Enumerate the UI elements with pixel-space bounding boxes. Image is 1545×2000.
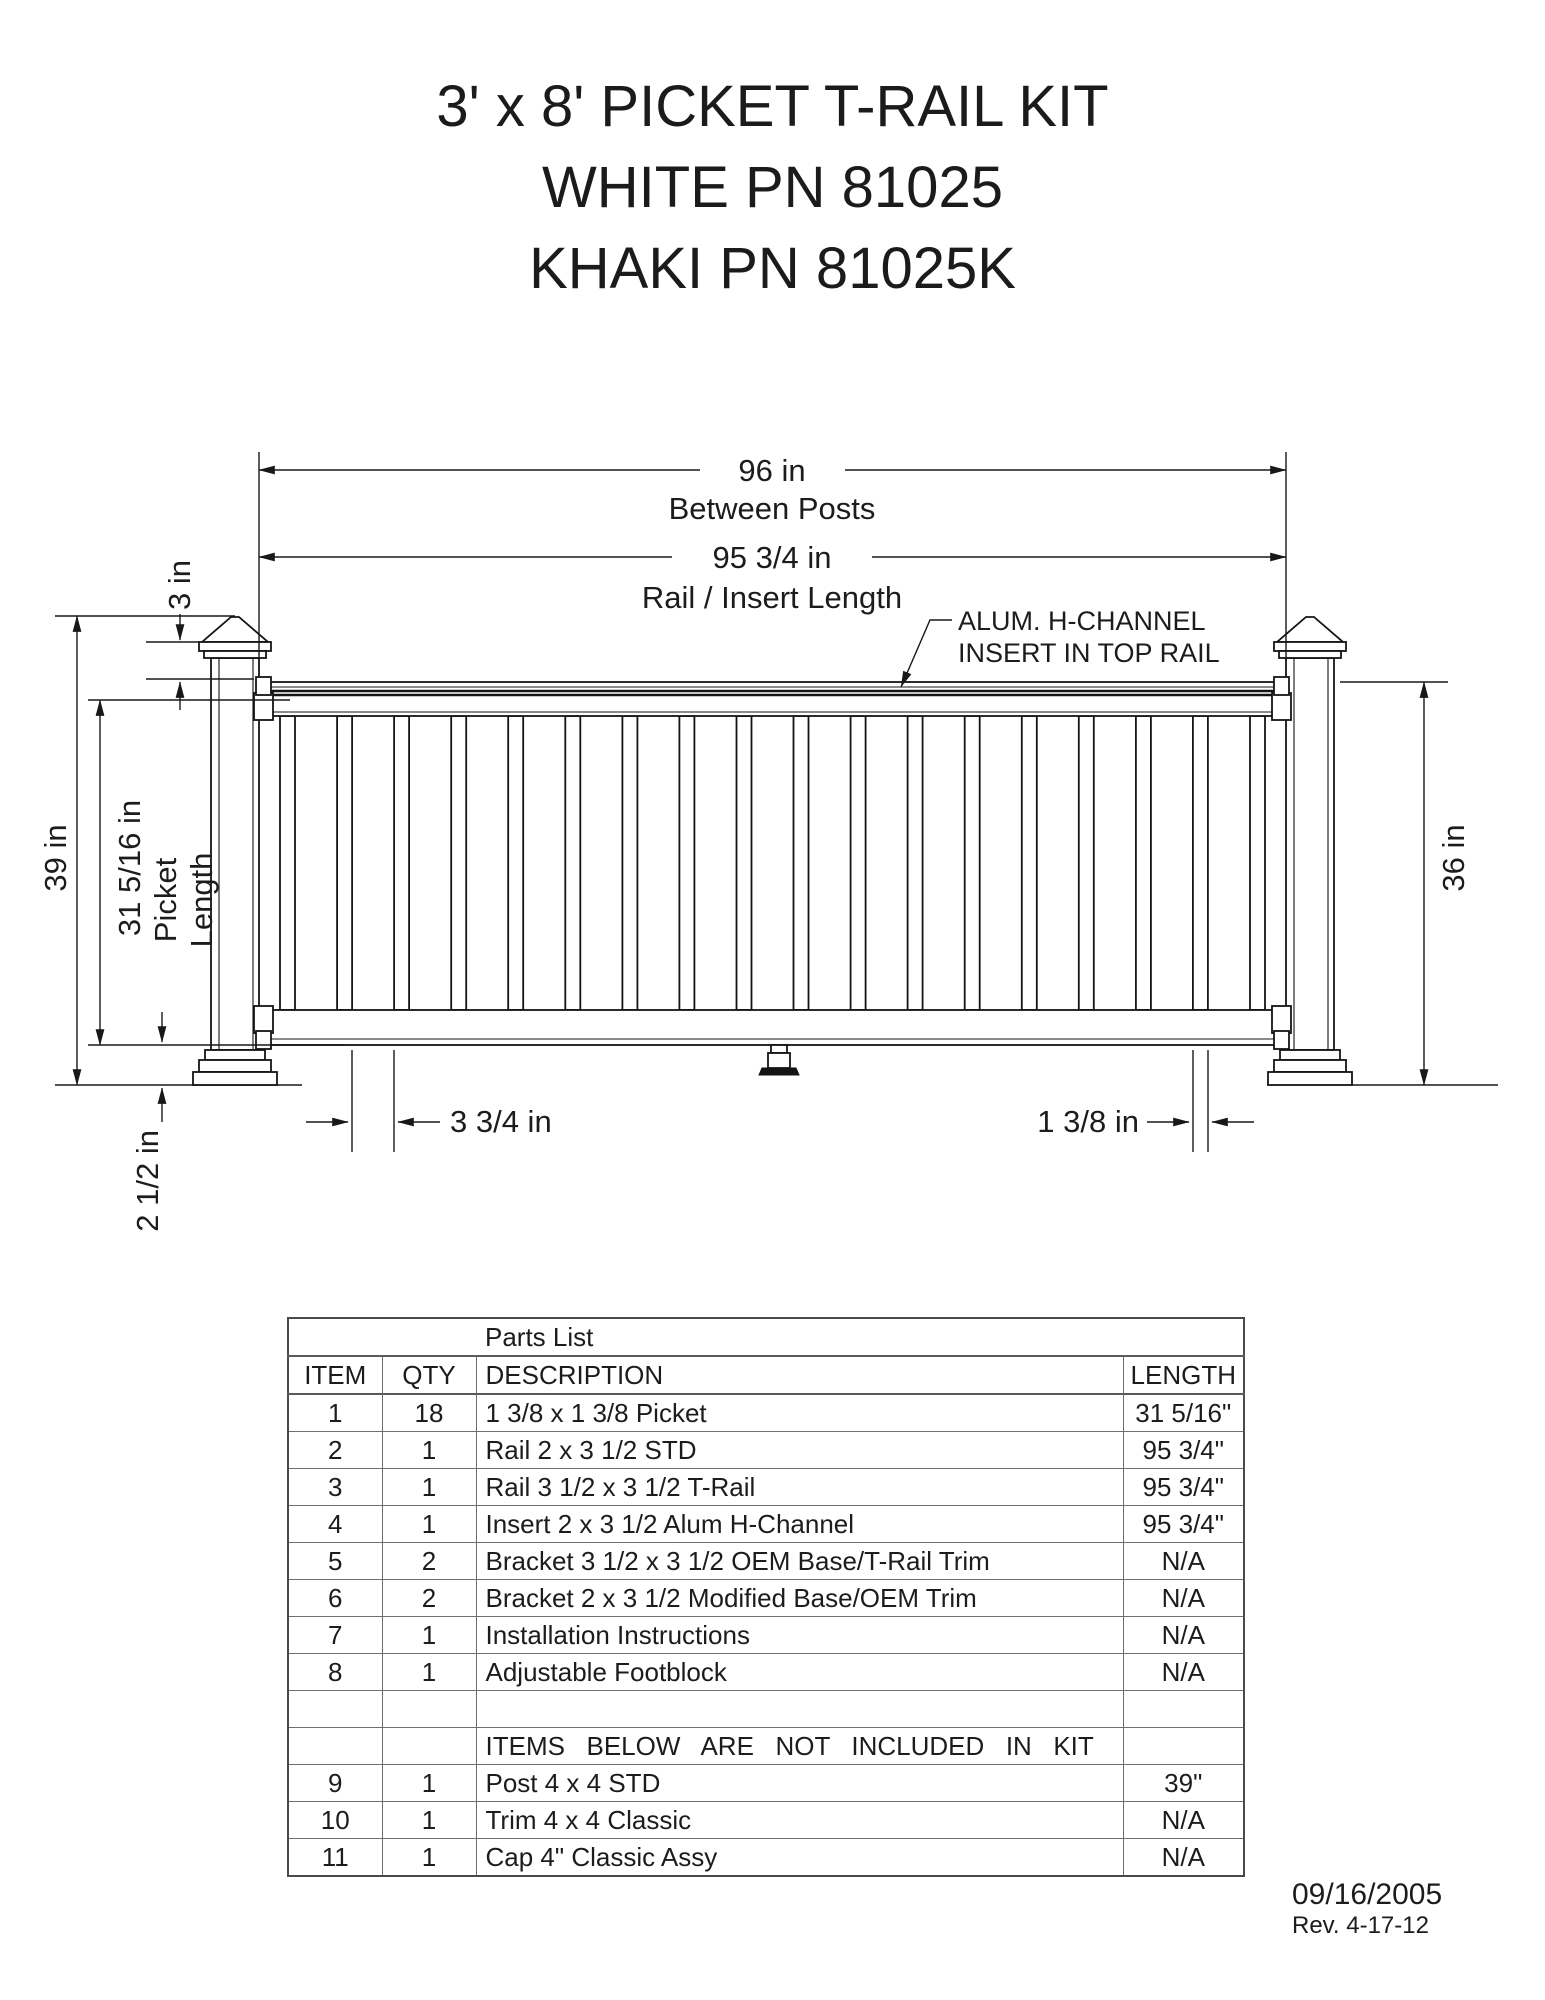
qty-cell: 1 (382, 1839, 476, 1877)
right-post-base-trim (1268, 1072, 1352, 1085)
picket (622, 716, 637, 1010)
length-cell: 95 3/4" (1123, 1469, 1244, 1506)
qty-cell: 1 (382, 1617, 476, 1654)
qty-cell: 2 (382, 1543, 476, 1580)
item-cell: 6 (288, 1580, 382, 1617)
h-channel-callout: ALUM. H-CHANNEL INSERT IN TOP RAIL (901, 606, 1220, 687)
description-cell: Rail 2 x 3 1/2 STD (476, 1432, 1123, 1469)
bottom-rail-right-bracket (1274, 1031, 1289, 1049)
column-header-qty: QTY (382, 1356, 476, 1394)
dim-label-between-posts: Between Posts (669, 491, 876, 526)
item-cell: 7 (288, 1617, 382, 1654)
parts-table-body: 1181 3/8 x 1 3/8 Picket31 5/16"21Rail 2 … (288, 1394, 1244, 1876)
parts-row: 111Cap 4" Classic AssyN/A (288, 1839, 1244, 1877)
description-cell: Adjustable Footblock (476, 1654, 1123, 1691)
length-cell: N/A (1123, 1580, 1244, 1617)
parts-list-table: Parts List ITEM QTY DESCRIPTION LENGTH 1… (287, 1317, 1245, 1877)
length-cell: N/A (1123, 1802, 1244, 1839)
length-cell: 95 3/4" (1123, 1506, 1244, 1543)
dim-rail-insert-length: 95 3/4 in Rail / Insert Length (259, 539, 1286, 615)
footer: 09/16/2005 Rev. 4-17-12 (1292, 1878, 1442, 1940)
footblock-body (768, 1053, 790, 1068)
callout-leader-arrow (901, 620, 952, 687)
description-cell: Bracket 2 x 3 1/2 Modified Base/OEM Trim (476, 1580, 1123, 1617)
qty-cell: 1 (382, 1765, 476, 1802)
parts-row: 101Trim 4 x 4 ClassicN/A (288, 1802, 1244, 1839)
top-rail-right-bracket (1272, 693, 1291, 720)
parts-row-section: ITEMS BELOW ARE NOT INCLUDED IN KIT (288, 1728, 1244, 1765)
dim-label-rail-insert: Rail / Insert Length (642, 580, 902, 615)
picket (851, 716, 866, 1010)
length-cell: N/A (1123, 1654, 1244, 1691)
picket (565, 716, 580, 1010)
parts-row: 62Bracket 2 x 3 1/2 Modified Base/OEM Tr… (288, 1580, 1244, 1617)
picket (1022, 716, 1037, 1010)
qty-cell: 1 (382, 1506, 476, 1543)
parts-row: 21Rail 2 x 3 1/2 STD95 3/4" (288, 1432, 1244, 1469)
qty-cell: 1 (382, 1469, 476, 1506)
parts-list-title: Parts List (288, 1318, 1244, 1356)
bottom-rail-left-bracket (256, 1031, 271, 1049)
column-header-length: LENGTH (1123, 1356, 1244, 1394)
picket (1136, 716, 1151, 1010)
item-cell: 8 (288, 1654, 382, 1691)
left-post-cap-collar (199, 642, 271, 651)
parts-row: 71Installation InstructionsN/A (288, 1617, 1244, 1654)
parts-list-header-row: ITEM QTY DESCRIPTION LENGTH (288, 1356, 1244, 1394)
description-cell: Insert 2 x 3 1/2 Alum H-Channel (476, 1506, 1123, 1543)
dim-label-picket: Picket (148, 857, 183, 942)
qty-cell: 18 (382, 1394, 476, 1432)
right-post-cap-peak (1277, 617, 1343, 642)
parts-row: 31Rail 3 1/2 x 3 1/2 T-Rail95 3/4" (288, 1469, 1244, 1506)
column-header-description: DESCRIPTION (476, 1356, 1123, 1394)
length-cell: N/A (1123, 1543, 1244, 1580)
picket (280, 716, 295, 1010)
description-cell: Post 4 x 4 STD (476, 1765, 1123, 1802)
dim-value-96in: 96 in (738, 453, 805, 488)
item-cell: 4 (288, 1506, 382, 1543)
length-cell: 95 3/4" (1123, 1432, 1244, 1469)
dim-between-posts: 96 in Between Posts (259, 452, 1286, 526)
footblock (759, 1045, 799, 1075)
description-cell: Cap 4" Classic Assy (476, 1839, 1123, 1877)
qty-cell (382, 1728, 476, 1765)
item-cell: 3 (288, 1469, 382, 1506)
picket (908, 716, 923, 1010)
revision-note: Rev. 4-17-12 (1292, 1912, 1442, 1940)
item-cell: 5 (288, 1543, 382, 1580)
item-cell: 1 (288, 1394, 382, 1432)
footblock-neck (771, 1045, 787, 1053)
parts-row: 41Insert 2 x 3 1/2 Alum H-Channel95 3/4" (288, 1506, 1244, 1543)
picket (394, 716, 409, 1010)
dim-rail-height: 36 in (1340, 682, 1471, 1085)
top-rail-left-bracket (254, 693, 273, 720)
pickets (280, 716, 1265, 1010)
item-cell: 2 (288, 1432, 382, 1469)
right-post-cap-collar (1274, 642, 1346, 651)
dim-picket-gap: 3 3/4 in (306, 1050, 552, 1152)
left-post-base-trim (199, 1060, 271, 1072)
left-post-cap-collar (204, 651, 266, 658)
bottom-rail-right-bracket (1272, 1006, 1291, 1033)
item-cell (288, 1691, 382, 1728)
picket (794, 716, 809, 1010)
picket (451, 716, 466, 1010)
picket (737, 716, 752, 1010)
dim-label-length: Length (184, 853, 219, 948)
callout-line1: ALUM. H-CHANNEL (958, 606, 1206, 636)
callout-line2: INSERT IN TOP RAIL (958, 638, 1220, 668)
picket (337, 716, 352, 1010)
left-post-base-trim (193, 1072, 277, 1085)
dim-value-1-3-8: 1 3/8 in (1037, 1104, 1139, 1139)
description-cell: Trim 4 x 4 Classic (476, 1802, 1123, 1839)
top-rail-right-bracket (1274, 677, 1289, 695)
item-cell (288, 1728, 382, 1765)
picket (679, 716, 694, 1010)
length-cell (1123, 1728, 1244, 1765)
column-header-item: ITEM (288, 1356, 382, 1394)
bottom-rail (254, 1006, 1291, 1049)
dim-value-95-3-4: 95 3/4 in (713, 540, 832, 575)
right-post-cap-collar (1279, 651, 1341, 658)
item-cell: 9 (288, 1765, 382, 1802)
parts-row: 52Bracket 3 1/2 x 3 1/2 OEM Base/T-Rail … (288, 1543, 1244, 1580)
dim-value-3-3-4: 3 3/4 in (450, 1104, 552, 1139)
description-cell (476, 1691, 1123, 1728)
length-cell (1123, 1691, 1244, 1728)
left-post-cap-peak (202, 617, 268, 642)
parts-row-empty (288, 1691, 1244, 1728)
left-post-base-trim (205, 1050, 265, 1060)
parts-row: 91Post 4 x 4 STD39" (288, 1765, 1244, 1802)
top-rail (254, 677, 1291, 720)
right-post-base-trim (1280, 1050, 1340, 1060)
parts-row: 1181 3/8 x 1 3/8 Picket31 5/16" (288, 1394, 1244, 1432)
footblock-base (759, 1068, 799, 1075)
length-cell: 39" (1123, 1765, 1244, 1802)
description-cell: ITEMS BELOW ARE NOT INCLUDED IN KIT (476, 1728, 1123, 1765)
length-cell: 31 5/16" (1123, 1394, 1244, 1432)
item-cell: 11 (288, 1839, 382, 1877)
parts-list-title-row: Parts List (288, 1318, 1244, 1356)
description-cell: 1 3/8 x 1 3/8 Picket (476, 1394, 1123, 1432)
top-rail-left-bracket (256, 677, 271, 695)
dim-value-39in: 39 in (38, 824, 73, 891)
parts-row: 81Adjustable FootblockN/A (288, 1654, 1244, 1691)
length-cell: N/A (1123, 1617, 1244, 1654)
spec-sheet-page: 3' x 8' PICKET T-RAIL KIT WHITE PN 81025… (0, 0, 1545, 2000)
description-cell: Bracket 3 1/2 x 3 1/2 OEM Base/T-Rail Tr… (476, 1543, 1123, 1580)
dim-value-2-1-2: 2 1/2 in (130, 1130, 165, 1232)
dim-value-36in: 36 in (1436, 824, 1471, 891)
qty-cell: 1 (382, 1654, 476, 1691)
picket (965, 716, 980, 1010)
dim-value-3in: 3 in (162, 560, 197, 610)
picket (508, 716, 523, 1010)
length-cell: N/A (1123, 1839, 1244, 1877)
picket (1193, 716, 1208, 1010)
picket (1079, 716, 1094, 1010)
picket (1250, 716, 1265, 1010)
description-cell: Rail 3 1/2 x 3 1/2 T-Rail (476, 1469, 1123, 1506)
qty-cell (382, 1691, 476, 1728)
bottom-rail-body (259, 1010, 1286, 1045)
dim-picket-width: 1 3/8 in (1037, 1050, 1254, 1152)
description-cell: Installation Instructions (476, 1617, 1123, 1654)
qty-cell: 1 (382, 1802, 476, 1839)
dim-value-31-5-16: 31 5/16 in (112, 800, 147, 936)
item-cell: 10 (288, 1802, 382, 1839)
bottom-rail-left-bracket (254, 1006, 273, 1033)
document-date: 09/16/2005 (1292, 1878, 1442, 1912)
right-post-body (1286, 658, 1334, 1050)
qty-cell: 2 (382, 1580, 476, 1617)
qty-cell: 1 (382, 1432, 476, 1469)
right-post-base-trim (1274, 1060, 1346, 1072)
